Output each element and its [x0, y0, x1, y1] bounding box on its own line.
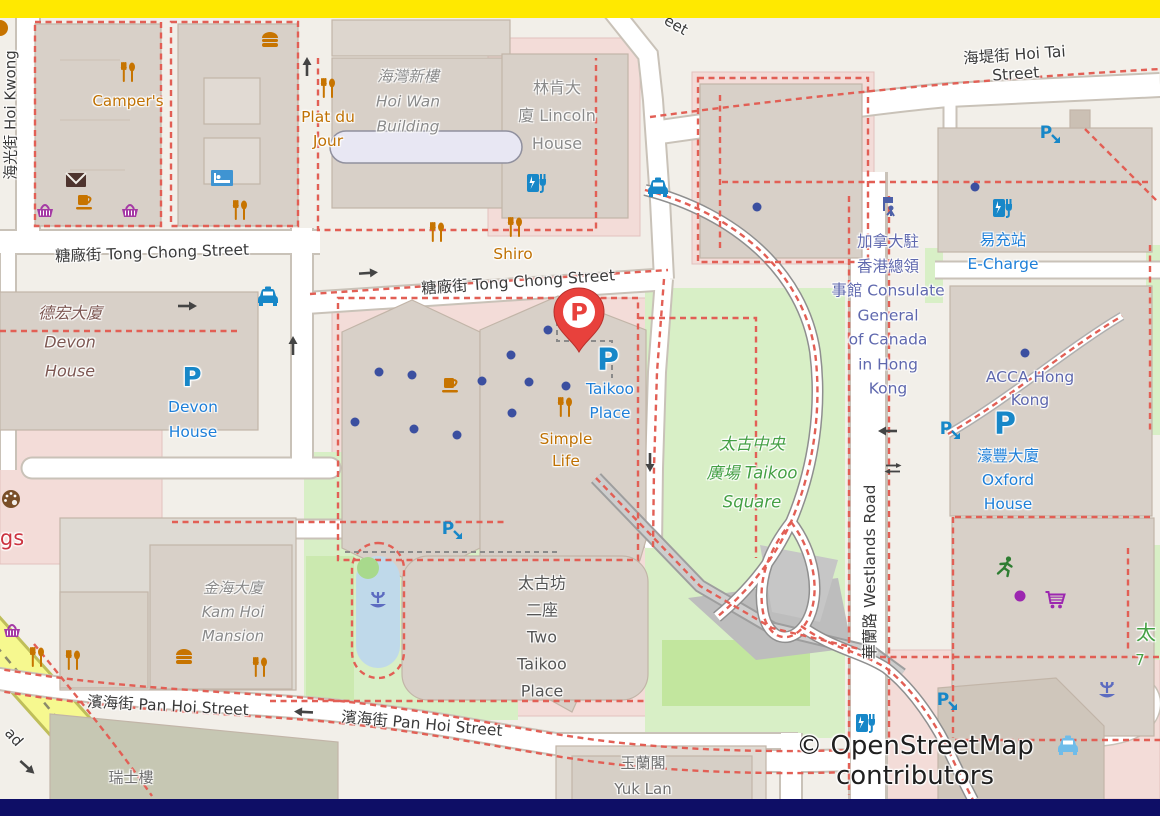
map-pin-marker[interactable]: P — [554, 288, 604, 352]
map-viewport[interactable]: PPPP © OpenStreetMap contributors 海光街 Ho… — [0, 0, 1160, 816]
svg-text:P: P — [570, 299, 588, 327]
bottom-bar — [0, 799, 1160, 816]
marker-layer: P — [0, 0, 1160, 816]
top-bar — [0, 0, 1160, 18]
